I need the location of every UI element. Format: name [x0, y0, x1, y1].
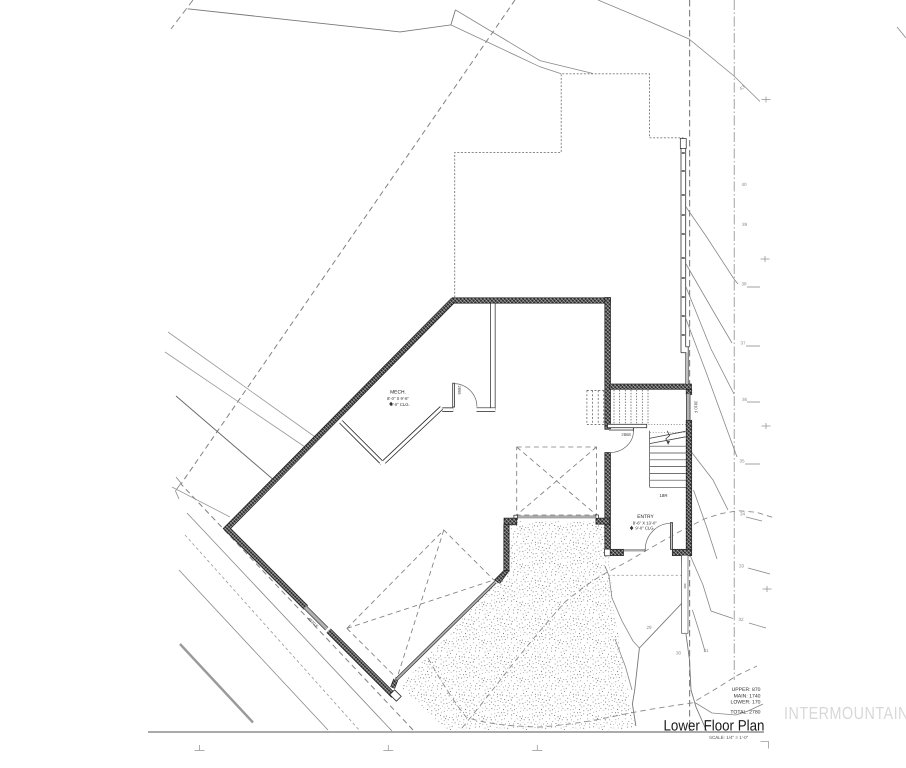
svg-text:38: 38 [741, 282, 747, 287]
svg-text:40: 40 [741, 182, 747, 187]
svg-text:ENTRY: ENTRY [637, 514, 654, 520]
svg-text:29: 29 [646, 625, 652, 630]
svg-text:UPPER: 870: UPPER: 870 [732, 687, 761, 693]
svg-text:18R: 18R [659, 493, 667, 498]
svg-text:37: 37 [740, 341, 746, 346]
svg-text:MAIN: 1740: MAIN: 1740 [734, 693, 761, 699]
svg-text:9'-0" CLG.: 9'-0" CLG. [635, 526, 654, 531]
svg-text:35: 35 [739, 459, 745, 464]
svg-text:30: 30 [676, 651, 682, 656]
svg-text:36: 36 [742, 397, 748, 402]
svg-text:SCALE: 1/4" = 1'-0": SCALE: 1/4" = 1'-0" [709, 735, 749, 740]
svg-text:2868: 2868 [457, 386, 462, 396]
svg-text:39: 39 [742, 222, 748, 227]
svg-text:9'-0" CLG.: 9'-0" CLG. [390, 402, 409, 407]
svg-text:33: 33 [739, 564, 745, 569]
svg-text:34: 34 [740, 512, 746, 517]
svg-text:32: 32 [738, 617, 744, 622]
svg-text:31: 31 [703, 648, 709, 653]
svg-text:LOWER: 170: LOWER: 170 [730, 700, 760, 706]
svg-text:TOTAL: 2780: TOTAL: 2780 [730, 710, 760, 716]
svg-text:3810 F: 3810 F [693, 401, 698, 414]
svg-text:MECH.: MECH. [390, 390, 406, 396]
svg-text:2868: 2868 [621, 432, 631, 437]
svg-text:INTERMOUNTAIN: INTERMOUNTAIN [784, 703, 906, 723]
svg-text:8'-0" X 9'-6": 8'-0" X 9'-6" [387, 396, 409, 401]
